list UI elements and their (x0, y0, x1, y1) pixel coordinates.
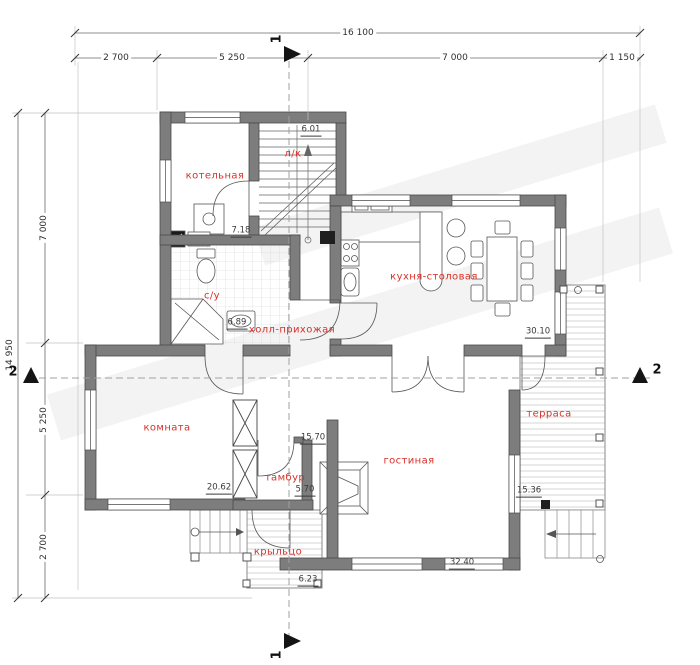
stove-icon (341, 240, 359, 266)
section-marker-2-right: 2 (652, 363, 661, 378)
dim-top-seg-4: 1 150 (607, 53, 637, 63)
dim-left-seg-2: 5 250 (39, 405, 49, 435)
floor-plan-canvas (0, 0, 700, 665)
room-label-porch: крыльцо (254, 547, 302, 558)
window (352, 558, 422, 570)
toilet-icon (197, 249, 215, 283)
room-area-kitchen: 30.10 (525, 328, 551, 339)
room-area-hall: 15.70 (300, 434, 326, 445)
window (509, 455, 520, 513)
dining-table-icon (487, 237, 517, 301)
room-area-stairs: 6.01 (301, 126, 322, 137)
window (555, 228, 566, 270)
bar-stool-icon (447, 219, 465, 265)
room-area-boiler: 7.18 (231, 227, 252, 238)
dim-top-seg-1: 2 700 (101, 53, 131, 63)
section-marker-1-top: 1 (270, 34, 285, 43)
window (555, 292, 566, 334)
room-area-bathroom: 6.89 (227, 319, 248, 330)
dim-left-seg-3: 2 700 (39, 532, 49, 562)
room-area-porch: 6.23 (298, 576, 319, 587)
window (352, 195, 410, 206)
room-area-room: 20.62 (206, 484, 232, 495)
double-door (392, 356, 464, 392)
room-label-vestibule: тамбур (265, 473, 305, 484)
window (452, 195, 520, 206)
dim-top-seg-3: 7 000 (440, 53, 470, 63)
room-label-room: комната (143, 423, 190, 434)
room-area-vestibule: 5.70 (295, 486, 316, 497)
room-label-hall: холл-прихожая (249, 325, 335, 336)
dim-top-total: 16 100 (340, 28, 376, 38)
vent-shaft-icon (233, 400, 257, 498)
room-label-stairs: л/к (284, 149, 301, 160)
room-area-terrace: 15.36 (516, 487, 542, 498)
window (160, 160, 171, 202)
window (85, 390, 96, 450)
kitchen-sink-icon (341, 268, 359, 296)
boiler-icon (194, 204, 224, 234)
room-label-boiler: котельная (186, 171, 245, 182)
window (108, 499, 170, 510)
room-label-bathroom: с/у (204, 291, 220, 302)
room-area-living: 32.40 (449, 559, 475, 570)
window (185, 112, 240, 123)
room-label-terrace: терраса (526, 409, 571, 420)
section-marker-2-left: 2 (8, 365, 17, 380)
room-label-living: гостиная (383, 456, 434, 467)
room-label-kitchen: кухня-столовая (390, 272, 478, 283)
dim-left-seg-1: 7 000 (39, 213, 49, 243)
dim-top-seg-2: 5 250 (217, 53, 247, 63)
floor-plan-drawing: 16 100 2 700 5 250 7 000 1 150 14 950 7 … (0, 0, 700, 665)
section-marker-1-bottom: 1 (270, 650, 285, 659)
